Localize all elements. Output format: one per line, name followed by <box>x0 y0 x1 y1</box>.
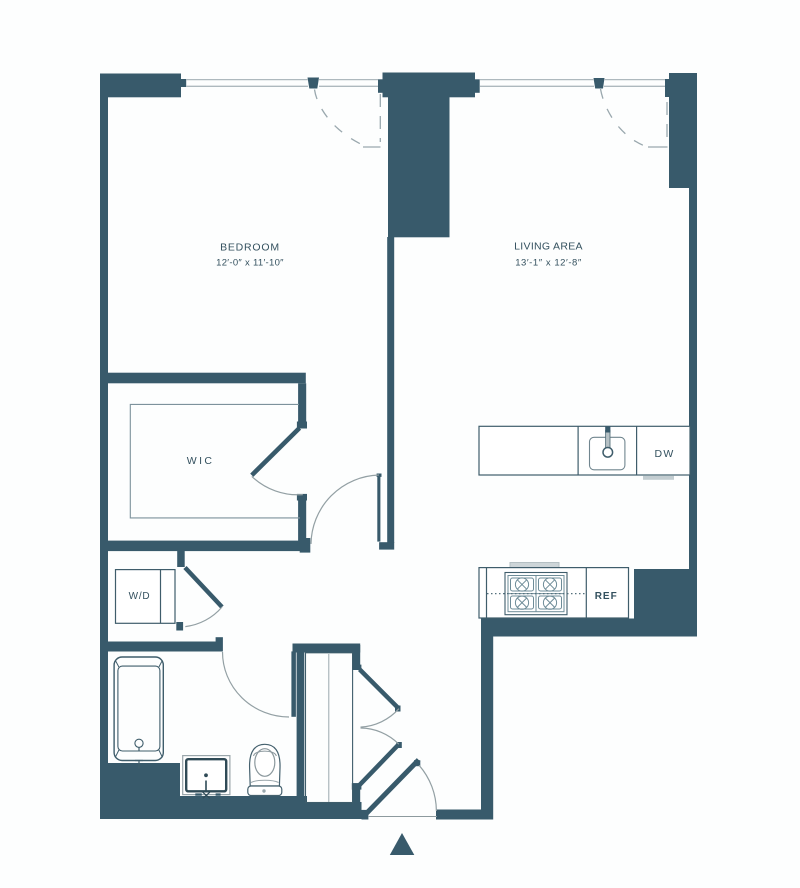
svg-text:12′-0″ x 11′-10″: 12′-0″ x 11′-10″ <box>216 257 284 268</box>
svg-text:REF: REF <box>595 591 618 602</box>
svg-text:LIVING AREA: LIVING AREA <box>514 240 583 252</box>
svg-text:DW: DW <box>655 448 675 460</box>
svg-text:W/D: W/D <box>129 591 151 602</box>
svg-text:BEDROOM: BEDROOM <box>220 241 280 253</box>
svg-text:WIC: WIC <box>187 455 215 467</box>
svg-text:13′-1″ x 12′-8″: 13′-1″ x 12′-8″ <box>515 257 582 268</box>
